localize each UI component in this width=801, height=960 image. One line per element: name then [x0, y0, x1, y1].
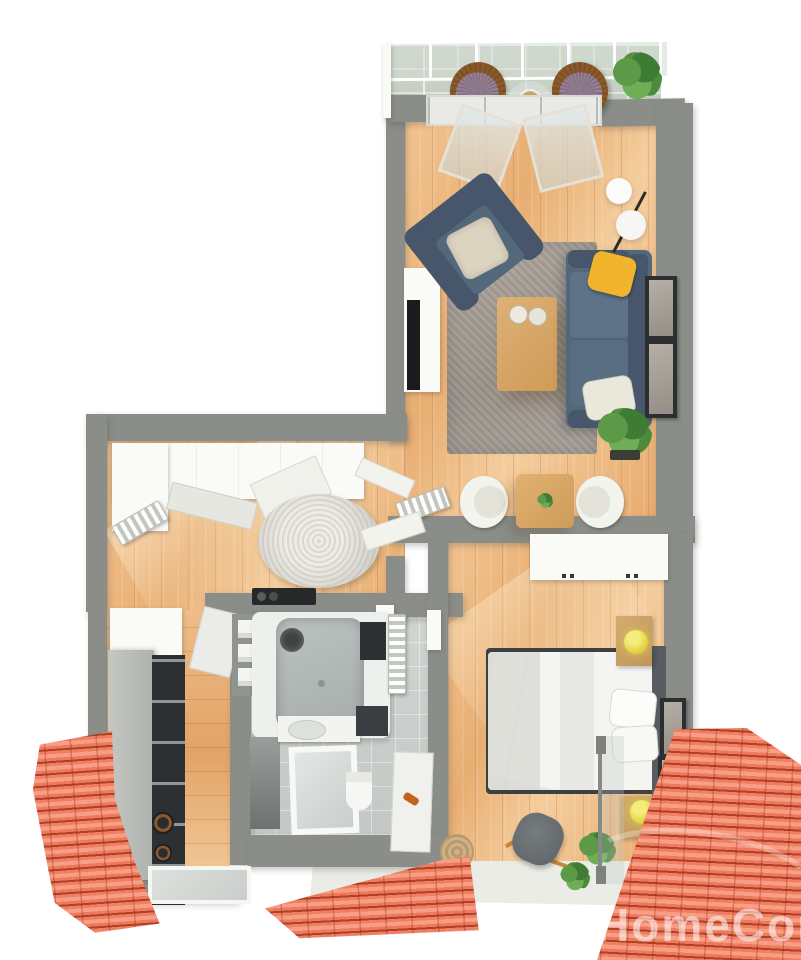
bathroom-dark-cabinet [360, 622, 386, 660]
kitchen-window [148, 866, 251, 904]
coffee-table [497, 297, 557, 391]
hall-round-rug [258, 494, 380, 588]
hall-console-knob-2 [269, 592, 278, 601]
wardrobe-handle-4 [634, 574, 638, 578]
bathroom-sink-counter [278, 716, 360, 742]
bathtub-drain [318, 680, 325, 687]
living-wall-art-1 [645, 276, 677, 340]
living-plant-pot [610, 450, 640, 460]
coffee-table-plate-2 [528, 307, 547, 326]
balcony-railing-left-post [383, 44, 391, 118]
shower-head [280, 628, 304, 652]
dining-table [516, 474, 574, 528]
balcony-plant [612, 52, 662, 102]
dining-chair-left [460, 476, 508, 528]
nightstand-lamp-top [624, 630, 648, 654]
bedroom-door-jamb [427, 610, 441, 650]
wardrobe-handle-3 [626, 574, 630, 578]
floor-lamp-globe-1 [606, 178, 632, 204]
glass-partition-post-top [596, 736, 606, 754]
watermark-text: HomeCom [596, 898, 801, 952]
wall-hall-left [86, 414, 107, 612]
wall-hall-top [88, 414, 407, 441]
floor-plan-scene: HomeCom [0, 0, 801, 960]
dining-table-plant [537, 493, 553, 509]
bed-pillow-1 [608, 688, 658, 731]
coffee-table-plate-1 [509, 305, 528, 324]
bed-crease [560, 652, 594, 790]
door-handle-orange [402, 791, 420, 806]
living-wall-art-2 [645, 340, 677, 418]
wall-living-top-left [386, 95, 428, 122]
hall-console-knob-1 [257, 592, 266, 601]
tv [407, 300, 420, 390]
dining-chair-right [576, 476, 624, 528]
sofa [566, 250, 652, 428]
hall-console [252, 588, 316, 605]
towel-radiator [388, 614, 406, 694]
bathroom-door-panel [390, 751, 433, 852]
wardrobe-handle-1 [562, 574, 566, 578]
floor-lamp-globe-2 [616, 210, 646, 240]
wall-living-left [386, 95, 405, 441]
washing-machine [250, 737, 280, 829]
bed-blanket-fold [488, 652, 540, 790]
sink-basin [288, 720, 326, 740]
toilet [346, 772, 372, 810]
wall-bedroom-left [428, 540, 448, 885]
bathroom-dark-mat [356, 706, 388, 736]
bedroom-wardrobe [530, 534, 668, 580]
kitchen-burner-2 [154, 844, 172, 862]
kitchen-burner-1 [152, 812, 174, 834]
wardrobe-handle-2 [570, 574, 574, 578]
